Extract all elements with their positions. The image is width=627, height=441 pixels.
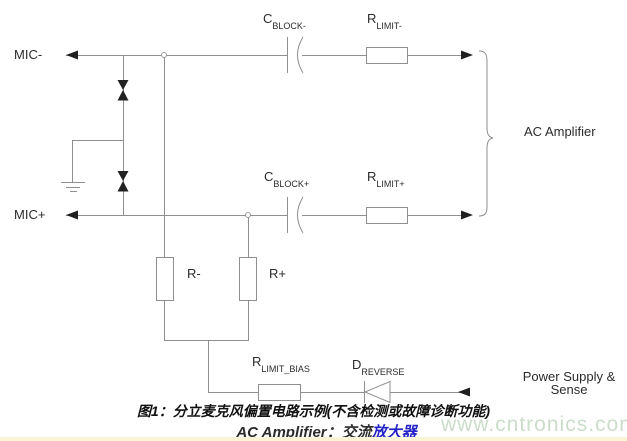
wire-r-minus-tail [164,300,165,341]
c-block-plus-base: C [264,169,273,184]
r-plus-label: R+ [269,266,286,281]
r-limit-bias-base: R [252,354,261,369]
d-reverse-base: D [352,357,361,372]
mic-minus-label: MIC- [14,47,42,62]
r-limit-plus-label: RLIMIT+ [367,169,405,190]
wire-bias-seg2 [300,392,364,393]
wire-bias-seg1 [208,392,258,393]
wire-r-plus-feed [248,215,249,257]
c-block-plus-sub: BLOCK+ [273,179,309,189]
wire-r-plus-tail [248,300,249,341]
wire-mic-plus-seg1 [66,215,287,216]
r-limit-minus-base: R [367,11,376,26]
d-reverse-label: DREVERSE [352,357,404,378]
wire-mid-down [208,340,209,393]
resistor-r-limit-minus [366,47,408,64]
page-bottom-strip [0,437,627,441]
resistor-r-plus [239,257,257,301]
wire-mic-plus-seg3 [407,215,463,216]
wire-mic-minus-seg3 [407,55,463,56]
c-block-minus-base: C [263,11,272,26]
mic-plus-label: MIC+ [14,207,45,222]
c-block-minus-sub: BLOCK- [272,21,306,31]
ac-amplifier-label: AC Amplifier [524,124,596,139]
r-limit-bias-sub: LIMIT_BIAS [261,364,310,374]
wire-mic-minus-seg2 [302,55,366,56]
ground-icon [61,182,85,183]
wire-bias-seg3 [390,392,462,393]
wire-bias-join [164,340,249,341]
circuit-diagram: MIC- MIC+ CBLOCK- RLIMIT- CBLOCK+ RLIMIT… [0,0,627,441]
r-limit-bias-label: RLIMIT_BIAS [252,354,310,375]
wire-ground-branch [72,140,124,141]
d-reverse-sub: REVERSE [361,367,404,377]
resistor-r-limit-plus [366,207,408,224]
power-supply-label: Power Supply & Sense [504,370,627,396]
ground-bar-2 [66,187,80,188]
diode-cathode-bar [364,381,365,403]
c-block-plus-label: CBLOCK+ [264,169,309,190]
c-block-minus-label: CBLOCK- [263,11,306,32]
wire-tvs-chain [123,55,124,216]
r-limit-plus-sub: LIMIT+ [376,179,404,189]
wire-mic-minus-seg1 [66,55,287,56]
resistor-r-minus [156,257,174,301]
ac-amplifier-brace [479,51,493,216]
r-limit-minus-label: RLIMIT- [367,11,402,32]
cap-block-plus-plate [287,197,288,233]
power-supply-line2: Sense [504,383,627,396]
wire-r-minus-feed [164,55,165,257]
wire-mic-plus-seg2 [302,215,366,216]
cap-block-minus-plate [287,37,288,73]
r-limit-minus-sub: LIMIT- [376,21,402,31]
watermark-text: www.cntronics.com [441,413,627,437]
ground-bar-3 [70,191,77,192]
resistor-r-limit-bias [258,384,301,401]
wire-ground-drop [72,140,73,183]
d-reverse-diode-icon [365,382,390,403]
r-minus-label: R- [187,266,201,281]
r-limit-plus-base: R [367,169,376,184]
